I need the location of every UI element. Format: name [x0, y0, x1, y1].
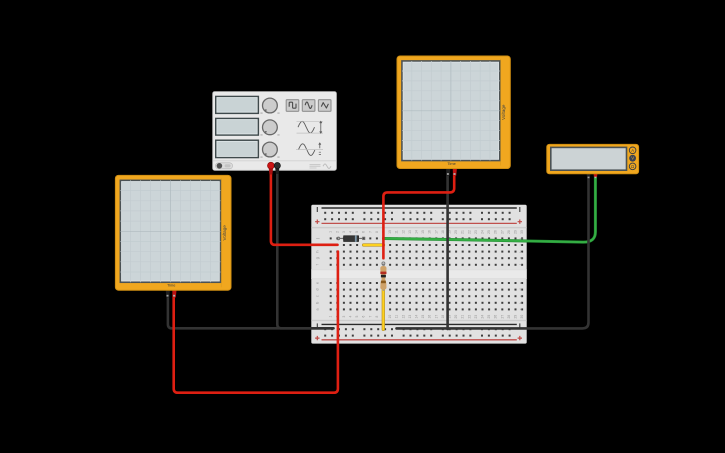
svg-text:b: b — [316, 302, 320, 304]
svg-text:7: 7 — [368, 231, 372, 233]
svg-text:17: 17 — [434, 230, 438, 234]
svg-text:6: 6 — [362, 316, 366, 318]
svg-text:28: 28 — [507, 315, 511, 319]
svg-text:d: d — [519, 289, 523, 291]
svg-text:23: 23 — [474, 230, 478, 234]
svg-text:15: 15 — [421, 315, 425, 319]
svg-text:22: 22 — [467, 230, 471, 234]
svg-text:15: 15 — [421, 230, 425, 234]
svg-text:13: 13 — [408, 230, 412, 234]
svg-text:23: 23 — [474, 315, 478, 319]
svg-text:1: 1 — [329, 231, 333, 233]
svg-text:12: 12 — [401, 230, 405, 234]
svg-text:16: 16 — [428, 315, 432, 319]
svg-text:V: V — [631, 156, 634, 161]
svg-text:j: j — [316, 238, 320, 240]
svg-text:26: 26 — [494, 315, 498, 319]
svg-text:18: 18 — [441, 230, 445, 234]
svg-text:12: 12 — [401, 315, 405, 319]
svg-text:29: 29 — [514, 230, 518, 234]
svg-text:7: 7 — [368, 316, 372, 318]
svg-text:25: 25 — [487, 315, 491, 319]
svg-text:3: 3 — [342, 316, 346, 318]
svg-text:c: c — [316, 295, 320, 297]
svg-text:c: c — [519, 295, 523, 297]
svg-text:14: 14 — [415, 230, 419, 234]
svg-text:d: d — [316, 289, 320, 291]
svg-text:Ω: Ω — [631, 164, 634, 169]
svg-text:3: 3 — [342, 231, 346, 233]
svg-text:A: A — [631, 148, 634, 153]
svg-text:g: g — [316, 257, 320, 259]
svg-text:8: 8 — [375, 231, 379, 233]
svg-text:g: g — [519, 257, 523, 259]
svg-text:e: e — [316, 282, 320, 284]
svg-text:13: 13 — [408, 315, 412, 319]
svg-text:5: 5 — [355, 231, 359, 233]
svg-text:11: 11 — [395, 315, 399, 319]
svg-text:h: h — [316, 251, 320, 253]
svg-text:10: 10 — [388, 315, 392, 319]
svg-text:b: b — [519, 302, 523, 304]
svg-text:14: 14 — [415, 315, 419, 319]
svg-text:h: h — [519, 251, 523, 253]
svg-text:26: 26 — [494, 230, 498, 234]
svg-text:Time: Time — [167, 283, 176, 288]
svg-text:Voltage: Voltage — [222, 225, 227, 241]
svg-text:21: 21 — [461, 315, 465, 319]
svg-text:6: 6 — [362, 231, 366, 233]
svg-text:24: 24 — [481, 230, 485, 234]
svg-text:20: 20 — [454, 230, 458, 234]
svg-text:27: 27 — [500, 315, 504, 319]
svg-text:30: 30 — [520, 315, 524, 319]
svg-text:20: 20 — [454, 315, 458, 319]
svg-text:25: 25 — [487, 230, 491, 234]
svg-text:1: 1 — [329, 316, 333, 318]
svg-text:10: 10 — [388, 230, 392, 234]
svg-text:Voltage: Voltage — [501, 104, 506, 120]
svg-text:e: e — [519, 282, 523, 284]
svg-text:4: 4 — [349, 316, 353, 318]
svg-text:4: 4 — [349, 231, 353, 233]
svg-text:2: 2 — [335, 231, 339, 233]
svg-text:11: 11 — [395, 230, 399, 234]
svg-text:5: 5 — [355, 316, 359, 318]
svg-text:29: 29 — [514, 315, 518, 319]
svg-text:8: 8 — [375, 316, 379, 318]
svg-text:22: 22 — [467, 315, 471, 319]
svg-text:17: 17 — [434, 315, 438, 319]
svg-text:28: 28 — [507, 230, 511, 234]
svg-text:24: 24 — [481, 315, 485, 319]
svg-text:16: 16 — [428, 230, 432, 234]
svg-text:18: 18 — [441, 315, 445, 319]
svg-text:27: 27 — [500, 230, 504, 234]
svg-text:21: 21 — [461, 230, 465, 234]
svg-text:30: 30 — [520, 230, 524, 234]
svg-text:Time: Time — [447, 161, 456, 166]
